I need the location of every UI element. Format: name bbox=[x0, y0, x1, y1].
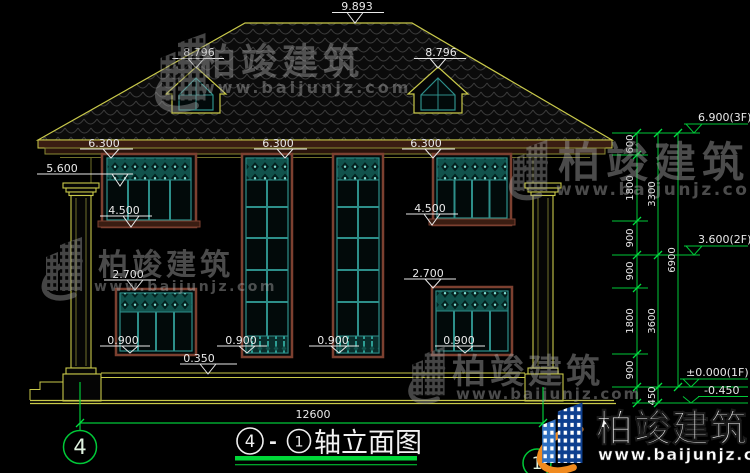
marker-sill1f-4-label: 0.900 bbox=[443, 334, 475, 347]
window-2f-left-sill bbox=[98, 221, 200, 227]
watermark-logo-icon bbox=[44, 237, 82, 298]
brand-logo-icon bbox=[540, 402, 582, 470]
title-axis-start: 4 bbox=[245, 432, 256, 451]
marker-head1f-right: 2.700 bbox=[404, 267, 456, 288]
watermark-logo-icon bbox=[411, 347, 445, 402]
watermark-logo-icon bbox=[158, 33, 205, 109]
entry-steps bbox=[30, 382, 63, 400]
title-axis-end: 1 bbox=[294, 435, 303, 451]
marker-plinth: 0.350 bbox=[180, 352, 237, 374]
marker-dormer-right-label: 8.796 bbox=[425, 46, 457, 59]
title-separator: - bbox=[269, 431, 277, 453]
title-underline-thick bbox=[235, 456, 417, 461]
chain-seg-2: 900 bbox=[625, 228, 636, 247]
brand-name: 柏竣建筑 bbox=[596, 407, 748, 450]
marker-ridge: 9.893 bbox=[332, 0, 384, 23]
chain-subtotal-1: 3600 bbox=[647, 308, 658, 333]
overall-width-label: 12600 bbox=[296, 408, 331, 421]
marker-sill1f-1-label: 0.900 bbox=[107, 334, 139, 347]
window-1f-right-transom bbox=[436, 291, 508, 311]
window-2f-right-transom bbox=[437, 158, 507, 180]
window-tall-left-transom bbox=[246, 158, 288, 180]
chain-total: 6900 bbox=[667, 247, 678, 272]
window-2f-right-sill bbox=[429, 219, 515, 225]
chain-seg-5: 900 bbox=[625, 360, 636, 379]
marker-eave-1-label: 6.300 bbox=[88, 137, 120, 150]
window-1f-left-transom bbox=[120, 293, 192, 312]
watermark-url: www.baijunjz.com bbox=[456, 385, 641, 403]
level-ground-label: -0.450 bbox=[704, 384, 739, 397]
marker-sill1f-3-label: 0.900 bbox=[317, 334, 349, 347]
level-f1-label: ±0.000(1F) bbox=[686, 366, 749, 379]
chain-seg-3: 900 bbox=[625, 261, 636, 280]
marker-head1f-right-label: 2.700 bbox=[412, 267, 444, 280]
level-f2: 3.600(2F) bbox=[684, 233, 750, 255]
window-tall-right bbox=[333, 154, 383, 357]
drawing-title: 4 - 1 轴立面图 bbox=[235, 428, 422, 465]
watermark-brand-color: 柏竣建筑 www.baijunjz.com bbox=[540, 402, 750, 470]
elevation-drawing-canvas: 9.893 8.796 8.796 6.300 6.300 6.300 5.60… bbox=[0, 0, 750, 473]
window-tall-left bbox=[242, 154, 292, 357]
title-text: 轴立面图 bbox=[314, 428, 422, 459]
level-f3: 6.900(3F) bbox=[684, 111, 750, 133]
cad-elevation-svg: 9.893 8.796 8.796 6.300 6.300 6.300 5.60… bbox=[0, 0, 750, 473]
watermark-brand: 柏竣建筑 bbox=[200, 42, 364, 83]
level-f3-label: 6.900(3F) bbox=[698, 111, 750, 124]
marker-plinth-label: 0.350 bbox=[183, 352, 215, 365]
marker-sill2f-right-label: 4.500 bbox=[414, 202, 446, 215]
axis-bubble-left-number: 4 bbox=[73, 435, 86, 459]
level-f2-label: 3.600(2F) bbox=[698, 233, 750, 246]
watermark-url: www.baijunjz.com bbox=[94, 279, 277, 295]
marker-eave-3-label: 6.300 bbox=[410, 137, 442, 150]
marker-ridge-label: 9.893 bbox=[341, 0, 373, 13]
marker-sill1f-2-label: 0.900 bbox=[225, 334, 257, 347]
chain-subtotal-2: 450 bbox=[647, 386, 658, 405]
watermark-url: www.baijunjz.com bbox=[556, 180, 750, 200]
chain-seg-4: 1800 bbox=[625, 308, 636, 333]
brand-url: www.baijunjz.com bbox=[598, 445, 750, 464]
marker-sill2f-left-label: 4.500 bbox=[108, 204, 140, 217]
window-2f-left-transom bbox=[107, 158, 191, 180]
eave-fascia-band bbox=[38, 140, 612, 148]
watermark-brand: 柏竣建筑 bbox=[98, 248, 234, 283]
window-tall-right-transom bbox=[337, 158, 379, 180]
marker-capital-label: 5.600 bbox=[46, 162, 78, 175]
marker-eave-2-label: 6.300 bbox=[262, 137, 294, 150]
watermark-right: 柏竣建筑 www.baijunjz.com bbox=[511, 138, 750, 200]
watermark-url: www.baijunjz.com bbox=[200, 78, 411, 97]
